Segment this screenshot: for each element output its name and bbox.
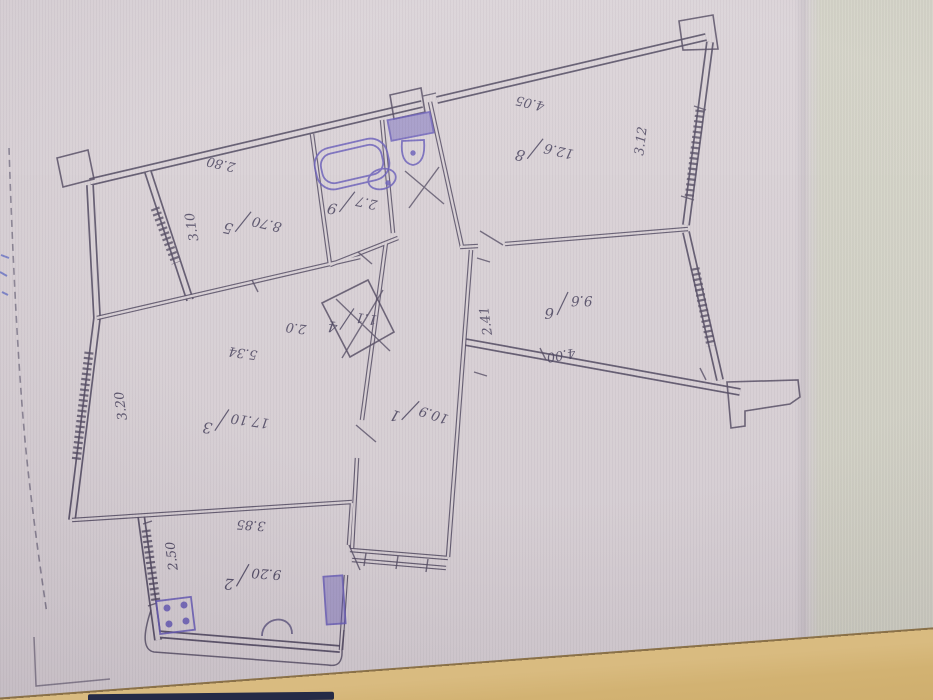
room-label-1: 10.91 [388,394,451,440]
room-label-9: 2.79 [325,187,380,227]
room-number-text: 6 [544,304,554,322]
room-label-3: 17.103 [201,406,270,445]
bathtub [311,135,393,193]
dimension-label-3.85: 3.85 [236,516,266,533]
fraction-bar [236,563,249,587]
dimension-label-2.50: 2.50 [163,541,182,573]
dimension-text: 2.41 [477,306,496,338]
shaft-notch-bottom-right [727,380,800,428]
room-area-text: 1.1 [355,309,379,328]
fraction-bar [339,189,355,214]
parapet-block-left [57,150,94,187]
bathroom-sink [366,166,398,193]
fraction-bar [527,136,543,161]
dimension-label-5.34: 5.34 [228,343,259,362]
balcony-door-arc [262,620,292,636]
dark-edge-strip [88,692,334,700]
fraction-bar [215,408,229,432]
kitchen-sink-unit [323,575,345,624]
dimension-text: 4.05 [514,92,547,113]
stove [156,597,195,634]
dimension-label-2.80: 2.80 [205,153,238,174]
dimension-text: 3.20 [112,391,131,422]
blue-ink-marks [0,255,9,295]
dimension-text: 3.10 [183,211,203,242]
room-area-text: 12.6 [542,139,575,161]
room-area-text: 8.70 [250,212,283,234]
dimension-label-4.05: 4.05 [514,92,547,113]
room-label-2: 9.202 [223,563,282,597]
paper-fold-line [0,148,47,614]
dimension-text: 3.12 [632,126,650,157]
dimension-label-2.0: 2.0 [285,319,308,337]
room-label-6: 9.66 [544,292,592,322]
fixtures [156,112,434,636]
entry-cross-mark [405,167,444,208]
room-number-text: 5 [221,218,234,238]
room-number-text: 3 [201,418,213,437]
room-label-5: 8.705 [221,207,283,249]
room-label-8: 12.68 [513,134,575,176]
dimension-label-3.12: 3.12 [632,126,650,157]
dimension-label-2.41: 2.41 [477,306,496,338]
fraction-bar [340,307,354,331]
dimension-label-3.10: 3.10 [183,211,203,242]
room-number-text: 9 [325,198,339,218]
interior-walls [72,102,688,650]
dimension-label-3.20: 3.20 [112,391,131,422]
fraction-bar [557,292,568,315]
room-area-text: 2.7 [354,192,380,212]
room-area-text: 9.6 [571,292,593,308]
room-number-text: 2 [223,575,235,594]
dimension-text: 5.34 [228,343,259,362]
room-number-text: 1 [388,405,403,425]
dimension-text: 2.50 [163,541,182,573]
toilet [387,112,433,165]
room-area-text: 10.9 [417,402,451,427]
dimension-text: 2.80 [205,153,238,174]
fraction-bar [235,209,251,234]
room-number-text: 8 [513,145,526,165]
fraction-bar [402,398,420,423]
floor-plan-photo: 12.688.7052.791.149.6617.10310.919.2024.… [0,0,933,700]
door-swing-ticks [349,231,503,570]
corner-balcony-outline [34,637,110,686]
room-area-text: 9.20 [250,564,282,582]
room-area-text: 17.10 [229,410,270,431]
dimension-text: 2.0 [285,319,308,337]
floor-plan-drawing: 12.688.7052.791.149.6617.10310.919.2024.… [0,0,933,700]
dimension-text: 3.85 [236,516,266,533]
